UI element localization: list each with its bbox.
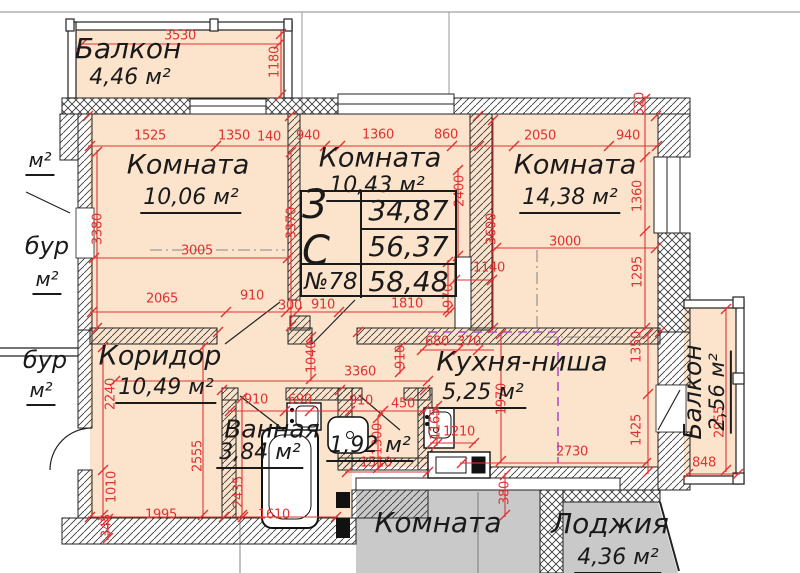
unit-living-area: 34,87 — [360, 192, 455, 228]
unit-total-area: 58,48 — [360, 263, 455, 298]
unit-area: 56,37 — [360, 228, 455, 263]
unit-number: №78 — [302, 263, 360, 298]
unit-info-card: 3 С №78 34,87 56,37 58,48 — [300, 190, 457, 297]
unit-type: 3 С — [302, 192, 360, 263]
floorplan-canvas: 3530118015251350140940136086020509405203… — [0, 0, 800, 573]
